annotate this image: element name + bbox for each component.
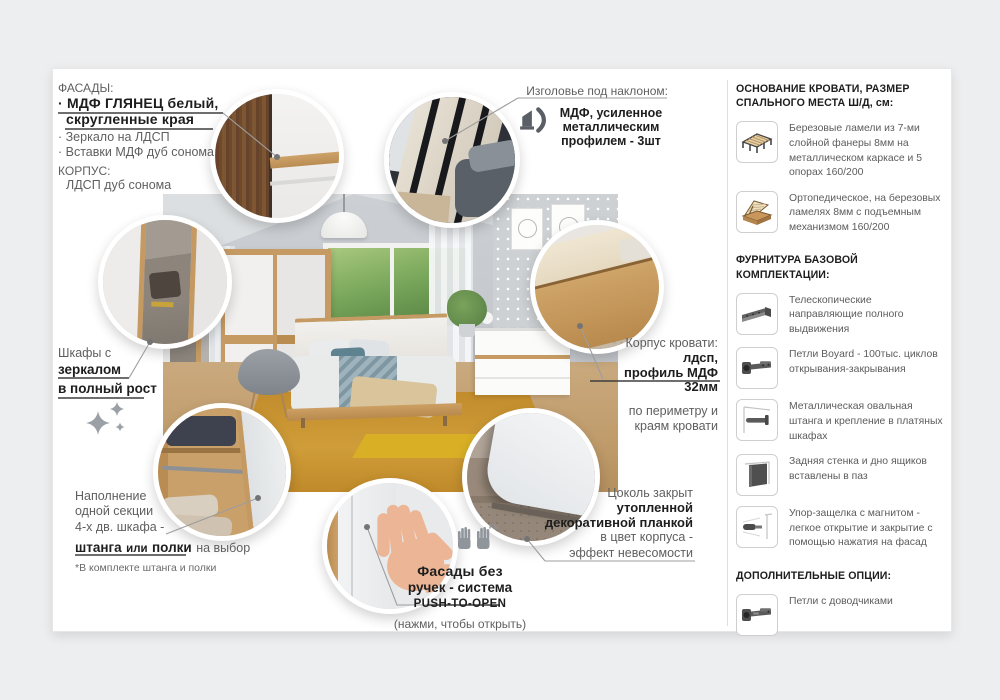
korpus-value: ЛДСП дуб сонома [58,178,243,193]
mirror-note-bold: в полный рост [58,380,208,397]
options-section-title: ДОПОЛНИТЕЛЬНЫЕ ОПЦИИ: [736,569,946,583]
back-panel-icon [736,454,778,496]
plant [447,290,487,328]
section-note-footnote: *В комплекте штанга и полки [75,562,265,574]
bedframe-note: Корпус кровати: лдсп, профиль МДФ 32мм п… [598,336,718,434]
facade-feature: · Вставки МДФ дуб сонома [58,145,243,160]
section-note: Наполнение одной секции 4-х дв. шкафа - … [75,489,265,574]
folded-blanket [166,416,236,446]
sparkles-icon [84,401,130,437]
hands-icon [455,524,499,554]
facades-note: ФАСАДЫ: · МДФ ГЛЯНЕЦ белый, скругленные … [58,81,243,193]
bedframe-note-line: Корпус кровати: [598,336,718,351]
spec-row: Задняя стенка и дно ящиков вставлены в п… [736,454,948,496]
sidebar-divider [727,80,728,626]
mirror-door [142,215,193,349]
section-note-line: одной секции [75,504,265,519]
spec-text: Петли Boyard - 100тыс. циклов открывания… [789,347,948,377]
spec-row: Березовые ламели из 7-ми слойной фанеры … [736,121,948,180]
headboard-title: Изголовье под наклоном: [518,84,668,98]
soft-close-hinge-icon [736,594,778,636]
spec-text: Петли с доводчиками [789,594,948,610]
headboard-spec-bold: МДФ, усиленное [558,106,664,120]
infographic-page: ФАСАДЫ: · МДФ ГЛЯНЕЦ белый, скругленные … [0,0,1000,700]
plant-pot [459,324,475,337]
callout-bed-corner [530,220,664,354]
facade-feature: · Зеркало на ЛДСП [58,130,243,145]
headboard-note: Изголовье под наклоном: МДФ, усиленное м… [518,84,668,149]
spec-row: Петли с доводчиками [736,594,948,636]
rod-icon [736,399,778,441]
spec-text: Упор-защелка с магнитом - легкое открыти… [789,506,948,551]
bedframe-note-bold: профиль МДФ 32мм [598,366,718,395]
spec-text: Березовые ламели из 7-ми слойной фанеры … [789,121,948,180]
spec-row: Петли Boyard - 100тыс. циклов открывания… [736,347,948,389]
hinge-icon [736,347,778,389]
mirror-note: Шкафы с зеркалом в полный рост [58,346,208,397]
spec-text: Телескопические направляющие полного выд… [789,293,948,338]
plinth-note-line: эффект невесомости [533,546,693,561]
bedframe-note-line: краям кровати [598,419,718,434]
spec-row: Ортопедическое, на березовых ламелях 8мм… [736,191,948,236]
base-section-title: ОСНОВАНИЕ КРОВАТИ, РАЗМЕР СПАЛЬНОГО МЕСТ… [736,82,946,110]
headboard-spec-bold: профилем - 3шт [558,134,664,148]
bedframe-note-line: по периметру и [598,404,718,419]
spec-row: Телескопические направляющие полного выд… [736,293,948,338]
spec-row: Упор-защелка с магнитом - легкое открыти… [736,506,948,551]
hardware-section-title: ФУРНИТУРА БАЗОВОЙ КОМПЛЕКТАЦИИ: [736,253,946,281]
drawer-slide-icon [736,293,778,335]
slat-base-icon [736,121,778,163]
oak-door-edge [327,478,338,614]
section-note-line: Наполнение [75,489,265,504]
section-note-tail: на выбор [196,541,250,555]
bedframe-note-bold: лдсп, [598,351,718,366]
spec-text: Металлическая овальная штанга и креплени… [789,399,948,444]
push-to-open-label: PUSH-TO-OPEN [386,598,534,610]
callout-mirror-wardrobe [98,215,232,349]
lift-base-icon [736,191,778,233]
spec-text: Ортопедическое, на березовых ламелях 8мм… [789,191,948,236]
korpus-title: КОРПУС: [58,164,243,178]
facade-feature-bold: · МДФ ГЛЯНЕЦ белый, [58,95,243,111]
mirror-note-bold: зеркалом [58,361,208,378]
section-note-bold: полки [152,540,192,555]
push-note-hint: (нажми, чтобы открыть) [386,617,534,631]
facade-feature-bold: скругленные края [58,111,243,127]
section-note-line: 4-х дв. шкафа - [75,520,265,535]
spec-row: Металлическая овальная штанга и креплени… [736,399,948,444]
section-note-mid: или [126,543,147,555]
spec-text: Задняя стенка и дно ящиков вставлены в п… [789,454,948,484]
facades-title: ФАСАДЫ: [58,81,243,95]
plinth-note-bold: утопленной [533,501,693,516]
section-note-bold: штанга [75,540,122,555]
lamp-cord [343,194,345,213]
push-note-bold: ручек - система [386,579,534,596]
plinth-note-bold: декоративной планкой [533,516,693,531]
callout-headboard [384,92,520,228]
push-note-bold: Фасады без [386,563,534,579]
push-note: Фасады без ручек - система PUSH-TO-OPEN … [386,524,534,631]
specs-sidebar: ОСНОВАНИЕ КРОВАТИ, РАЗМЕР СПАЛЬНОГО МЕСТ… [736,82,948,646]
plinth-note: Цоколь закрыт утопленной декоративной пл… [533,486,693,561]
plinth-note-line: Цоколь закрыт [533,486,693,501]
mirror-reflection [149,270,182,299]
mirror-note-line: Шкафы с [58,346,208,361]
tilted-headboard-icon [518,106,550,134]
plinth-note-line: в цвет корпуса - [533,530,693,545]
headboard-spec-bold: металлическим [558,120,664,134]
magnet-latch-icon [736,506,778,548]
